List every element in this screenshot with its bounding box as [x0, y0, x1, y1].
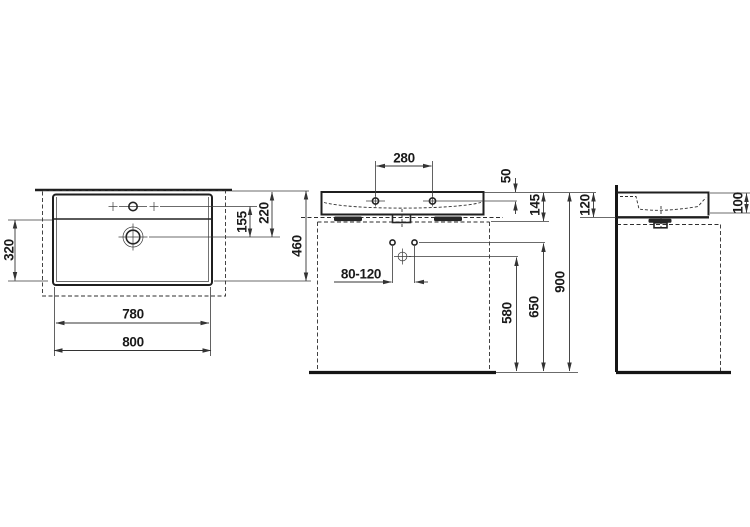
dim-label-50: 50: [499, 169, 513, 183]
dim-label-155: 155: [235, 211, 249, 233]
drain-symbol: [119, 224, 148, 251]
dim-label-120: 120: [578, 194, 592, 216]
plan-basin-outline: [53, 195, 212, 286]
mounting-bracket-left: [334, 217, 362, 222]
faucet-hole-symbol: [109, 202, 159, 211]
wall-fixing-hole-right: [412, 240, 417, 245]
technical-drawing-canvas: 320 155 220 460 780 800 280 50 145 80-12…: [0, 0, 750, 527]
dim-label-220: 220: [257, 202, 271, 224]
dim-label-780: 780: [122, 307, 144, 321]
supply-connection-target: [394, 249, 411, 265]
front-basin-outline: [322, 192, 484, 215]
taphole-target-left: [366, 196, 385, 207]
dim-label-145: 145: [528, 194, 542, 216]
dim-label-320: 320: [2, 239, 16, 261]
side-view: [580, 185, 750, 373]
taphole-target-right: [423, 196, 442, 207]
dim-label-80-120: 80-120: [341, 267, 381, 281]
dim-label-580: 580: [500, 302, 514, 324]
dim-label-650: 650: [527, 296, 541, 318]
dim-label-900: 900: [553, 271, 567, 293]
front-bowl-hidden-line: [324, 203, 481, 209]
mounting-bracket-right: [434, 217, 462, 222]
dim-label-800: 800: [122, 335, 144, 349]
dim-label-280: 280: [393, 151, 415, 165]
plan-basin-inner-edge: [57, 197, 209, 282]
wall-fixing-hole-left: [390, 240, 395, 245]
optional-taphole-right-plus-icon: [150, 202, 159, 211]
drawing-linework: [0, 0, 750, 527]
dim-label-460: 460: [290, 235, 304, 257]
side-basin-top-front: [617, 193, 709, 216]
side-drain-trap: [654, 223, 667, 228]
optional-taphole-left-plus-icon: [109, 202, 118, 211]
side-bowl-hidden-line: [620, 197, 706, 211]
drain-trap-outline: [393, 215, 411, 223]
dim-label-100: 100: [731, 192, 745, 214]
